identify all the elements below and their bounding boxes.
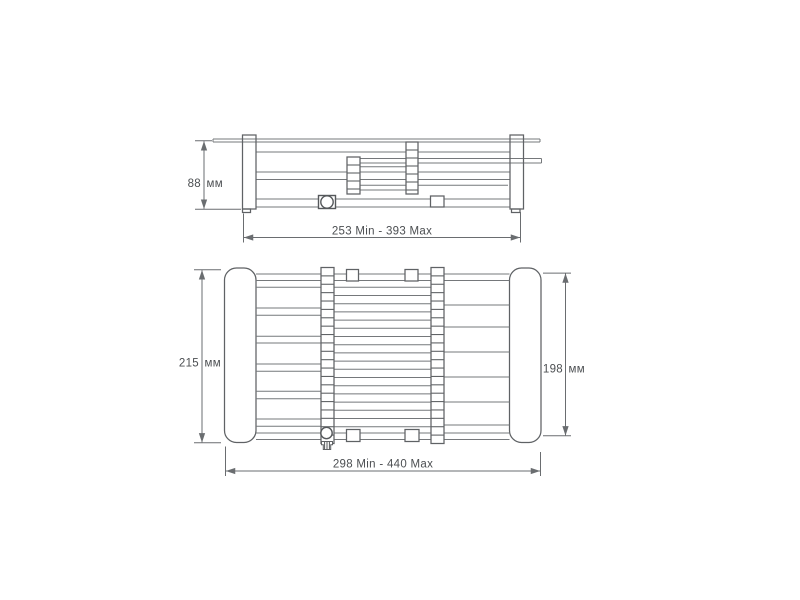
extension-strip-right	[431, 268, 444, 444]
locking-knob-plan	[321, 427, 332, 438]
left-bracket	[243, 135, 257, 209]
thumb-screw	[322, 442, 333, 450]
side-width-dimension: 253 Min - 393 Max	[244, 212, 521, 243]
clip-bottom-right	[405, 430, 419, 442]
clip-top-right	[405, 270, 418, 282]
side-height-dimension: 88 мм	[188, 141, 241, 209]
knob-circle	[321, 196, 333, 208]
plan-width-range-label: 298 Min - 440 Max	[333, 459, 433, 471]
end-cap-right	[510, 268, 542, 443]
right-bracket	[510, 135, 524, 209]
extension-strip-rungs	[321, 276, 444, 435]
side-height-unit-label: мм	[207, 178, 223, 190]
side-width-range-label: 253 Min - 393 Max	[332, 226, 432, 238]
end-cap-left	[225, 268, 257, 443]
side-height-value-label: 88	[188, 178, 201, 190]
plan-view-rods	[256, 274, 510, 440]
plan-left-height-unit-label: мм	[205, 358, 221, 370]
plan-left-height-value-label: 215	[179, 358, 199, 370]
plan-right-height-unit-label: мм	[569, 364, 585, 376]
drawing-canvas: 88 мм 253 Min - 393 Max	[0, 0, 800, 600]
plan-left-height-dimension: 215 мм	[179, 270, 221, 443]
clip-top-left	[347, 270, 359, 282]
side-view-rods	[213, 139, 542, 207]
side-elevation-view: 88 мм 253 Min - 393 Max	[188, 135, 542, 243]
technical-drawing: 88 мм 253 Min - 393 Max	[0, 0, 800, 600]
plan-width-dimension: 298 Min - 440 Max	[226, 447, 541, 477]
left-bracket-foot	[243, 209, 251, 213]
plan-right-height-dimension: 198 мм	[543, 273, 585, 436]
right-bracket-foot	[512, 209, 521, 213]
clip-bottom-left	[347, 430, 361, 442]
plan-view: 215 мм 198 мм 298 Min - 440 Max	[179, 268, 585, 477]
plan-right-height-value-label: 198	[543, 364, 563, 376]
locking-knob-side	[319, 196, 336, 209]
extension-strip-left	[321, 268, 334, 444]
clip-side	[431, 196, 445, 207]
